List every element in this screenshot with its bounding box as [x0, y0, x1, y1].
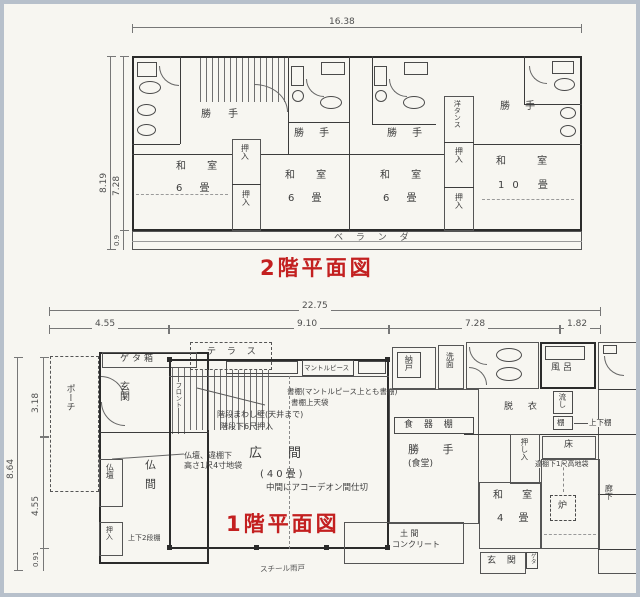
room-label-washitsu-4: 和 室: [496, 157, 561, 168]
closet-label: 押入: [240, 144, 248, 160]
room-label-genkan2: 玄 関: [487, 557, 520, 566]
tatami-line: [136, 194, 228, 195]
room-label-shokudo: (食堂): [408, 460, 433, 469]
note-accordion: 中間にアコーデオン間仕切: [266, 484, 368, 493]
room-label-mats-4: 10 畳: [498, 181, 556, 192]
label-toko: 床: [564, 441, 573, 450]
porch-outline: [50, 356, 99, 492]
room-label-mats-1: 6 畳: [176, 184, 217, 195]
room-label-rouka: 廊下: [604, 484, 612, 500]
wall: [132, 144, 180, 145]
dimension-1f-seg2: 9.10: [294, 320, 320, 329]
bookshelf: [358, 361, 386, 374]
hall-north-shelf-line: [169, 376, 389, 377]
sink-icon: [375, 90, 387, 102]
room-label-washitsu-1: 和 室: [176, 162, 226, 173]
room-label-mats-3: 6 畳: [383, 194, 424, 205]
dimension-1f-seg4: 1.82: [564, 320, 590, 329]
room-label-porch: ポーチ: [64, 384, 73, 411]
room-label-genkan: 玄関: [117, 381, 128, 401]
dimension-2f-left-balcony: 0.9: [114, 232, 121, 249]
label-doma-2: コンクリート: [392, 541, 440, 549]
room-label-senmen: 洗面: [445, 352, 453, 368]
label-doma-1: 土 間: [400, 530, 419, 538]
floorplan-canvas: 16.38 8.19 7.28 0.9 ベ ラ ン ダ 勝 手 和 室 6 畳 …: [0, 0, 640, 597]
room-label-washitsu: 和 室: [493, 491, 540, 502]
toilet-icon: [496, 367, 522, 381]
wall: [444, 187, 474, 188]
wall: [598, 549, 640, 550]
dimension-1f-left1: 3.18: [32, 390, 41, 416]
dimension-2f-top: 16.38: [326, 18, 358, 27]
room-label-katte: 勝 手: [408, 444, 464, 456]
dimension-2f-left-main: 7.28: [113, 173, 122, 199]
post: [167, 545, 172, 550]
dimension-line-1f-seg2: [169, 328, 389, 329]
wall: [232, 184, 261, 185]
wall: [288, 56, 289, 154]
note-stair-wall: 階段まわし壁(天井まで): [217, 411, 303, 419]
wall: [349, 154, 444, 155]
wall: [598, 434, 640, 435]
label-ro: 炉: [558, 502, 567, 511]
room-label-kitchen-4: 勝 手: [500, 102, 541, 113]
room-label-nando: 納戸: [404, 355, 412, 371]
dimension-line-2f-left-balcony: [123, 231, 124, 250]
toilet-tank-icon: [321, 62, 345, 75]
sink-icon: [292, 90, 304, 102]
note-updown-shelf: 上下棚: [589, 419, 612, 427]
leader-line: [574, 423, 588, 424]
wall: [524, 56, 525, 104]
room-label-butsuma: 仏間: [144, 459, 156, 497]
room-label-mats: 4 畳: [497, 514, 535, 525]
dimension-1f-seg3: 7.28: [462, 320, 488, 329]
toilet-icon: [320, 96, 342, 109]
room-label-kitchen-2: 勝 手: [294, 129, 335, 140]
dimension-line-2f-left-total: [110, 56, 111, 250]
wall: [372, 124, 436, 125]
dimension-line-1f-left2: [43, 437, 44, 549]
room-label-hiroma: 広間: [249, 447, 327, 461]
tatami-line: [482, 199, 574, 200]
wall: [372, 56, 373, 124]
closet-label: 押し入: [520, 438, 528, 461]
closet-label: 押入: [454, 147, 462, 163]
closet-label: 押入: [454, 193, 462, 209]
label-geta: ゲタ: [529, 553, 535, 564]
bathtub-icon: [545, 346, 585, 360]
post: [254, 545, 259, 550]
wall: [132, 154, 232, 155]
wall: [261, 154, 349, 155]
toilet-icon: [554, 78, 575, 91]
note-two-tier-shelf: 上下2段棚: [128, 535, 160, 542]
wall: [288, 122, 349, 123]
tatami-line: [563, 462, 564, 492]
room-label-butsudan: 仏壇: [105, 463, 113, 479]
toilet-tank-icon: [137, 62, 157, 77]
right-wing: [598, 342, 640, 574]
toilet-tank-icon: [404, 62, 428, 75]
wall: [349, 56, 350, 231]
wall: [598, 389, 640, 390]
room-label-hiroma-mats: (40畳): [260, 470, 306, 481]
note-shelf-1: 書棚(マントルピース上とも書棚): [287, 388, 397, 396]
closet-label: 押入: [105, 526, 112, 540]
room-label-kitchen-3: 勝 手: [387, 129, 428, 140]
room-label-mats-2: 6 畳: [288, 194, 329, 205]
fixture-icon: [603, 345, 617, 354]
note-shelf-2: 書棚上天袋: [291, 399, 329, 407]
toilet-icon: [496, 348, 522, 362]
post: [167, 357, 172, 362]
dimension-1f-left-total: 8.64: [7, 456, 16, 482]
note-steel-shutter: スチール雨戸: [260, 564, 305, 573]
sink-icon: [560, 107, 576, 119]
post: [324, 545, 329, 550]
dimension-line-2f-top: [132, 27, 582, 28]
wall: [444, 142, 474, 143]
sink-icon: [560, 125, 576, 137]
label-shokkidana: 食 器 棚: [404, 421, 457, 430]
dimension-line-1f-left3: [43, 549, 44, 571]
note-stair-closet: 階段下6尺押入: [220, 423, 273, 431]
plan2f-title: 2階平面図: [260, 252, 374, 282]
balcony-label: ベ ラ ン ダ: [334, 234, 414, 243]
toilet-tank-icon: [552, 61, 574, 74]
room-label-furo: 風呂: [551, 364, 575, 373]
closet-label: 押入: [241, 190, 249, 206]
dimension-1f-left3: 0.91: [33, 548, 40, 570]
dimension-1f-seg1: 4.55: [92, 320, 118, 329]
label-nagashi: 流し: [558, 393, 566, 408]
dimension-2f-left-total: 8.19: [100, 170, 109, 196]
sink-icon: [137, 104, 156, 116]
kitchen-room: [389, 389, 479, 524]
room-label-getabako: ゲタ箱: [120, 355, 156, 364]
dimension-1f-top-total: 22.75: [299, 302, 331, 311]
room-label-washitsu-2: 和 室: [285, 171, 335, 182]
room-label-datsui: 脱 衣: [504, 403, 543, 412]
room-label-kitchen-1: 勝 手: [201, 110, 245, 121]
wall: [180, 56, 181, 144]
bookshelf: [226, 361, 298, 374]
post: [385, 357, 390, 362]
wall: [474, 144, 582, 145]
toilet-icon: [139, 81, 161, 94]
label-mantelpiece: マントルピース: [304, 365, 349, 372]
room-label-washitsu-3: 和 室: [380, 171, 430, 182]
room-label-terrace: テ ラ ス: [207, 348, 260, 357]
sink-icon: [374, 66, 387, 86]
dimension-line-1f-left1: [43, 357, 44, 437]
label-tana: 棚: [557, 419, 565, 427]
wardrobe-label: 洋タンス: [453, 100, 460, 128]
sink-icon: [291, 66, 304, 86]
plan1f-title: 1階平面図: [226, 508, 340, 538]
dimension-line-1f-left-total: [17, 357, 18, 571]
tatami-line: [544, 534, 596, 535]
sink-icon: [137, 124, 156, 136]
toilet-icon: [403, 96, 425, 109]
dimension-line-2f-left-main: [123, 56, 124, 231]
dimension-1f-left2: 4.55: [32, 493, 41, 519]
